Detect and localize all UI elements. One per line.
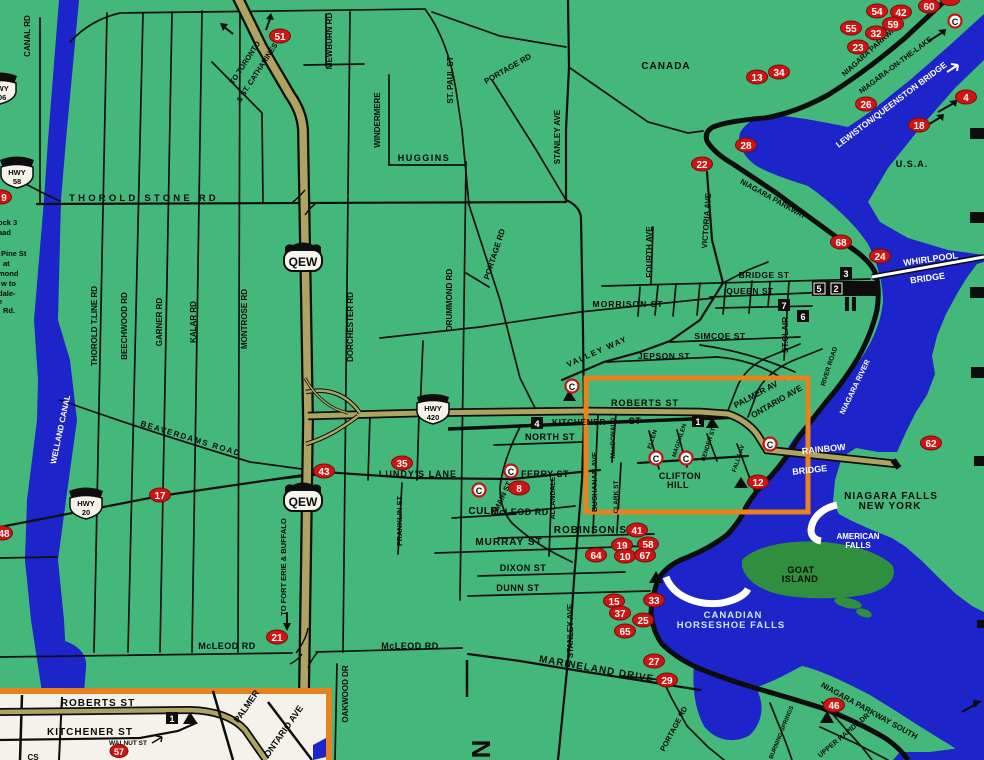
svg-text:33: 33 bbox=[648, 596, 660, 607]
svg-text:46: 46 bbox=[828, 701, 840, 712]
svg-text:54: 54 bbox=[871, 7, 883, 18]
svg-text:HWY: HWY bbox=[0, 84, 9, 93]
svg-text:57: 57 bbox=[114, 747, 124, 757]
svg-text:ST. PAUL ST: ST. PAUL ST bbox=[446, 56, 455, 103]
svg-text:MORRISON ST: MORRISON ST bbox=[593, 299, 664, 309]
svg-text:LUNDY'S LANE: LUNDY'S LANE bbox=[379, 469, 457, 479]
svg-text:29: 29 bbox=[661, 676, 673, 687]
svg-text:AMERICAN: AMERICAN bbox=[836, 532, 879, 541]
svg-text:MEWBURN RD: MEWBURN RD bbox=[325, 13, 334, 70]
svg-text:U.S.A.: U.S.A. bbox=[896, 159, 929, 169]
svg-text:KITCHENER: KITCHENER bbox=[552, 417, 606, 427]
svg-text:37: 37 bbox=[614, 609, 626, 620]
svg-text:McLEOD RD: McLEOD RD bbox=[381, 641, 439, 651]
svg-text:C: C bbox=[767, 440, 774, 450]
svg-text:NORTH ST: NORTH ST bbox=[525, 432, 575, 442]
svg-text:WINDERMERE: WINDERMERE bbox=[373, 92, 382, 148]
svg-text:BUCHANAN AVE: BUCHANAN AVE bbox=[590, 452, 599, 512]
svg-text:THOROLD STONE RD: THOROLD STONE RD bbox=[69, 193, 219, 204]
svg-text:MURRAY ST: MURRAY ST bbox=[475, 537, 542, 548]
svg-text:HILL: HILL bbox=[667, 480, 689, 490]
svg-text:60: 60 bbox=[923, 2, 935, 13]
svg-text:C: C bbox=[569, 382, 576, 392]
svg-text:25: 25 bbox=[637, 616, 649, 627]
svg-text:ROBERTS ST: ROBERTS ST bbox=[611, 398, 679, 408]
svg-text:HORSESHOE FALLS: HORSESHOE FALLS bbox=[677, 620, 785, 631]
svg-text:QEW: QEW bbox=[289, 255, 318, 269]
svg-text:at: at bbox=[3, 259, 10, 268]
svg-text:ROBINSON ST: ROBINSON ST bbox=[554, 525, 634, 536]
svg-text:N: N bbox=[466, 740, 496, 759]
svg-text:QUEEN ST: QUEEN ST bbox=[726, 286, 774, 296]
svg-text:1: 1 bbox=[695, 417, 700, 427]
svg-text:CANADA: CANADA bbox=[641, 61, 690, 72]
svg-text:22: 22 bbox=[696, 160, 708, 171]
svg-text:24: 24 bbox=[874, 252, 886, 263]
svg-text:CANAL RD: CANAL RD bbox=[23, 15, 32, 57]
svg-text:5: 5 bbox=[816, 284, 821, 294]
svg-text:HWY: HWY bbox=[77, 499, 95, 508]
svg-text:DORCHESTER RD: DORCHESTER RD bbox=[346, 292, 355, 362]
svg-text:68: 68 bbox=[835, 238, 847, 249]
svg-text:20: 20 bbox=[82, 508, 90, 517]
svg-text:ock 3: ock 3 bbox=[0, 218, 17, 227]
svg-text:NEW YORK: NEW YORK bbox=[859, 501, 922, 512]
svg-text:26: 26 bbox=[860, 100, 872, 111]
svg-text:DUNN ST: DUNN ST bbox=[496, 583, 540, 593]
svg-text:THOROLD T.LINE RD: THOROLD T.LINE RD bbox=[90, 286, 99, 366]
svg-text:406: 406 bbox=[0, 93, 6, 102]
svg-text:FALLS: FALLS bbox=[845, 541, 871, 550]
svg-text:55: 55 bbox=[845, 24, 857, 35]
svg-text:e: e bbox=[0, 297, 2, 306]
svg-text:HWY: HWY bbox=[8, 168, 26, 177]
svg-text:6: 6 bbox=[800, 312, 805, 322]
svg-text:OAKWOOD DR: OAKWOOD DR bbox=[341, 665, 350, 723]
svg-text:KITCHENER ST: KITCHENER ST bbox=[47, 727, 133, 738]
svg-text:41: 41 bbox=[631, 526, 643, 537]
svg-text:12: 12 bbox=[752, 478, 764, 489]
svg-text:9: 9 bbox=[1, 193, 7, 204]
svg-text:FERRY ST: FERRY ST bbox=[521, 469, 569, 479]
svg-text:62: 62 bbox=[925, 439, 937, 450]
svg-text:32: 32 bbox=[870, 29, 882, 40]
svg-text:HUGGINS: HUGGINS bbox=[398, 153, 451, 163]
svg-text:8: 8 bbox=[516, 484, 522, 495]
svg-text:17: 17 bbox=[154, 491, 166, 502]
svg-text:mond: mond bbox=[0, 269, 19, 278]
svg-text:7: 7 bbox=[781, 301, 786, 311]
svg-text:27: 27 bbox=[648, 657, 660, 668]
svg-text:ALLANDALE: ALLANDALE bbox=[550, 476, 557, 519]
svg-text:C: C bbox=[952, 17, 959, 27]
svg-text:ISLAND: ISLAND bbox=[782, 574, 819, 584]
svg-text:BEECHWOOD RD: BEECHWOOD RD bbox=[120, 292, 129, 360]
svg-text:QEW: QEW bbox=[289, 495, 318, 509]
svg-text:65: 65 bbox=[619, 627, 631, 638]
svg-text:ST: ST bbox=[629, 416, 642, 426]
svg-text:3: 3 bbox=[843, 269, 848, 279]
svg-text:C: C bbox=[683, 454, 690, 464]
svg-text:23: 23 bbox=[852, 43, 864, 54]
svg-text:51: 51 bbox=[274, 32, 286, 43]
svg-text:Rd.: Rd. bbox=[3, 306, 15, 315]
svg-text:C: C bbox=[508, 467, 515, 477]
svg-text:C: C bbox=[653, 454, 660, 464]
svg-text:10: 10 bbox=[619, 552, 631, 563]
svg-text:59: 59 bbox=[887, 20, 899, 31]
svg-text:MONTROSE RD: MONTROSE RD bbox=[240, 289, 249, 349]
svg-text:FOURTH AVE: FOURTH AVE bbox=[645, 226, 654, 278]
svg-text:28: 28 bbox=[740, 141, 752, 152]
svg-text:FRANKLIN ST: FRANKLIN ST bbox=[395, 496, 404, 546]
svg-text:58: 58 bbox=[13, 177, 21, 186]
svg-text:GARNER RD: GARNER RD bbox=[155, 298, 164, 347]
svg-text:DRUMMOND RD: DRUMMOND RD bbox=[445, 269, 454, 331]
svg-text:KALAR RD: KALAR RD bbox=[189, 301, 198, 343]
svg-text:2: 2 bbox=[833, 284, 838, 294]
svg-text:CS: CS bbox=[27, 753, 39, 760]
svg-text:35: 35 bbox=[396, 459, 408, 470]
svg-text:dale-: dale- bbox=[0, 289, 16, 298]
svg-text:JEPSON ST: JEPSON ST bbox=[638, 351, 691, 361]
svg-text:21: 21 bbox=[271, 633, 283, 644]
svg-text:Pine St: Pine St bbox=[1, 249, 27, 258]
svg-text:67: 67 bbox=[639, 551, 651, 562]
svg-text:STANLEY AVE: STANLEY AVE bbox=[553, 109, 562, 164]
svg-text:w to: w to bbox=[0, 279, 16, 288]
svg-text:420: 420 bbox=[427, 413, 440, 422]
svg-text:SIMCOE ST: SIMCOE ST bbox=[694, 331, 746, 341]
svg-text:4: 4 bbox=[534, 419, 539, 429]
svg-text:BRIDGE ST: BRIDGE ST bbox=[739, 270, 790, 280]
svg-text:McLEOD RD: McLEOD RD bbox=[198, 641, 256, 651]
svg-text:ST.CLAIR: ST.CLAIR bbox=[781, 317, 790, 353]
svg-text:1: 1 bbox=[169, 714, 174, 724]
svg-text:4: 4 bbox=[963, 93, 969, 104]
svg-text:13: 13 bbox=[751, 73, 763, 84]
svg-text:CLARK ST: CLARK ST bbox=[613, 481, 620, 514]
svg-text:DIXON ST: DIXON ST bbox=[500, 563, 547, 573]
svg-text:STANLEY AVE: STANLEY AVE bbox=[566, 603, 575, 658]
svg-text:aad: aad bbox=[0, 228, 11, 237]
svg-text:MacDONALD: MacDONALD bbox=[610, 417, 617, 458]
svg-text:43: 43 bbox=[318, 467, 330, 478]
svg-text:TO FORT ERIE & BUFFALO: TO FORT ERIE & BUFFALO bbox=[279, 518, 288, 616]
svg-text:ROBERTS ST: ROBERTS ST bbox=[61, 698, 135, 709]
svg-text:34: 34 bbox=[773, 68, 785, 79]
svg-text:64: 64 bbox=[590, 551, 602, 562]
svg-text:18: 18 bbox=[913, 121, 925, 132]
svg-text:C: C bbox=[476, 486, 483, 496]
svg-text:HWY: HWY bbox=[424, 404, 442, 413]
svg-text:48: 48 bbox=[0, 529, 10, 540]
